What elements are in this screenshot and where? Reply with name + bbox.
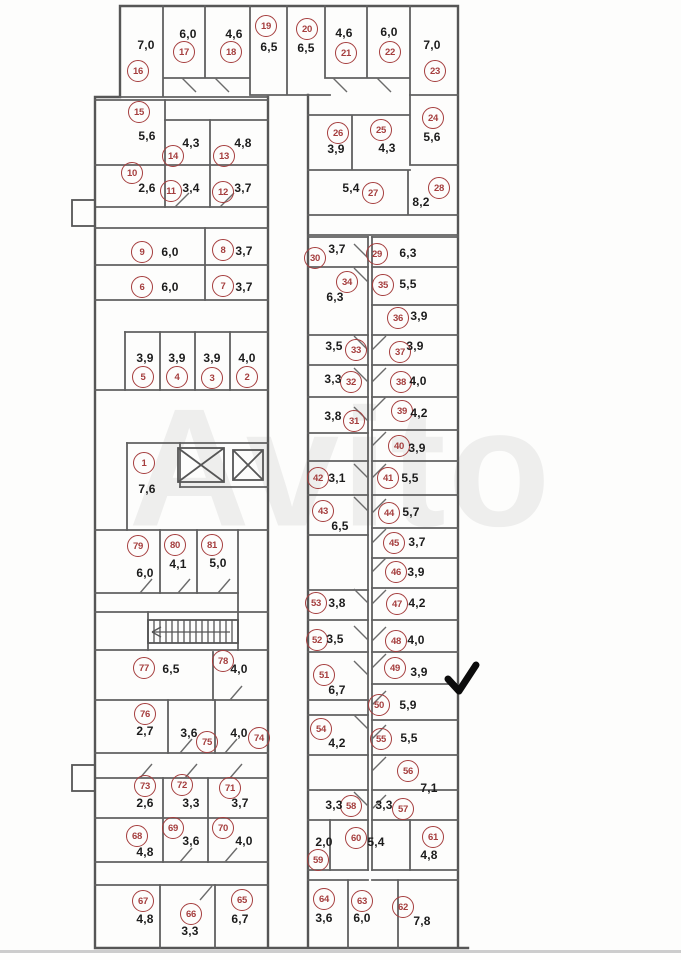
room-number: 16 bbox=[133, 66, 143, 77]
room-area-label: 3,9 bbox=[410, 309, 427, 323]
room-area-label: 3,6 bbox=[315, 911, 332, 925]
room-8-circle: 8 bbox=[212, 239, 234, 261]
room-number: 72 bbox=[177, 780, 187, 791]
bottom-divider bbox=[0, 950, 681, 953]
room-number: 21 bbox=[341, 48, 351, 59]
room-area-label: 3,3 bbox=[324, 372, 341, 386]
room-5-circle: 5 bbox=[132, 366, 154, 388]
room-47-circle: 47 bbox=[386, 593, 408, 615]
room-area-label: 4,2 bbox=[328, 736, 345, 750]
room-number: 71 bbox=[225, 783, 235, 794]
room-number: 79 bbox=[133, 541, 143, 552]
room-number: 68 bbox=[132, 831, 142, 842]
room-79-circle: 79 bbox=[127, 535, 149, 557]
room-number: 58 bbox=[346, 801, 356, 812]
room-number: 10 bbox=[127, 168, 137, 179]
room-36-circle: 36 bbox=[387, 307, 409, 329]
room-number: 13 bbox=[219, 151, 229, 162]
room-4-circle: 4 bbox=[166, 366, 188, 388]
room-24-circle: 24 bbox=[422, 107, 444, 129]
room-area-label: 5,5 bbox=[401, 471, 418, 485]
floorplan: Avito bbox=[0, 0, 681, 960]
room-area-label: 3,3 bbox=[181, 924, 198, 938]
room-number: 29 bbox=[372, 249, 382, 260]
room-area-label: 3,1 bbox=[328, 471, 345, 485]
room-46-circle: 46 bbox=[385, 561, 407, 583]
room-number: 62 bbox=[398, 902, 408, 913]
room-number: 32 bbox=[346, 377, 356, 388]
room-area-label: 7,6 bbox=[138, 482, 155, 496]
room-area-label: 6,5 bbox=[162, 662, 179, 676]
room-32-circle: 32 bbox=[340, 371, 362, 393]
room-area-label: 4,8 bbox=[420, 848, 437, 862]
room-16-circle: 16 bbox=[127, 60, 149, 82]
room-area-label: 4,0 bbox=[409, 374, 426, 388]
room-35-circle: 35 bbox=[372, 274, 394, 296]
room-area-label: 3,9 bbox=[407, 565, 424, 579]
room-number: 55 bbox=[376, 734, 386, 745]
room-area-label: 3,9 bbox=[406, 339, 423, 353]
room-number: 31 bbox=[349, 416, 359, 427]
room-number: 36 bbox=[393, 313, 403, 324]
room-number: 70 bbox=[218, 823, 228, 834]
room-number: 9 bbox=[140, 247, 145, 258]
room-area-label: 4,8 bbox=[234, 136, 251, 150]
room-number: 5 bbox=[141, 372, 146, 383]
room-27-circle: 27 bbox=[362, 182, 384, 204]
room-number: 3 bbox=[210, 373, 215, 384]
room-62-circle: 62 bbox=[392, 896, 414, 918]
room-area-label: 3,9 bbox=[408, 441, 425, 455]
room-area-label: 5,4 bbox=[342, 181, 359, 195]
room-number: 54 bbox=[316, 724, 326, 735]
room-area-label: 5,7 bbox=[402, 505, 419, 519]
room-14-circle: 14 bbox=[162, 145, 184, 167]
room-area-label: 6,0 bbox=[179, 27, 196, 41]
room-area-label: 7,8 bbox=[413, 914, 430, 928]
room-area-label: 6,0 bbox=[161, 245, 178, 259]
room-number: 69 bbox=[168, 823, 178, 834]
room-number: 50 bbox=[374, 700, 384, 711]
room-number: 65 bbox=[237, 895, 247, 906]
room-area-label: 3,7 bbox=[235, 244, 252, 258]
room-area-label: 3,3 bbox=[375, 798, 392, 812]
room-42-circle: 42 bbox=[307, 467, 329, 489]
room-area-label: 5,4 bbox=[367, 835, 384, 849]
room-area-label: 4,0 bbox=[230, 726, 247, 740]
room-area-label: 6,5 bbox=[331, 519, 348, 533]
room-number: 33 bbox=[351, 345, 361, 356]
room-number: 52 bbox=[312, 635, 322, 646]
room-22-circle: 22 bbox=[379, 41, 401, 63]
room-25-circle: 25 bbox=[370, 119, 392, 141]
room-area-label: 4,6 bbox=[225, 27, 242, 41]
room-9-circle: 9 bbox=[131, 241, 153, 263]
room-number: 42 bbox=[313, 473, 323, 484]
room-area-label: 5,6 bbox=[423, 130, 440, 144]
room-area-label: 3,7 bbox=[231, 796, 248, 810]
room-area-label: 6,0 bbox=[136, 566, 153, 580]
room-55-circle: 55 bbox=[370, 728, 392, 750]
room-number: 12 bbox=[218, 187, 228, 198]
room-number: 75 bbox=[202, 737, 212, 748]
room-number: 66 bbox=[186, 909, 196, 920]
room-number: 35 bbox=[378, 280, 388, 291]
room-number: 26 bbox=[333, 128, 343, 139]
room-number: 61 bbox=[428, 832, 438, 843]
room-number: 64 bbox=[319, 894, 329, 905]
room-number: 80 bbox=[170, 540, 180, 551]
room-23-circle: 23 bbox=[424, 60, 446, 82]
room-area-label: 6,3 bbox=[399, 246, 416, 260]
room-number: 74 bbox=[254, 733, 264, 744]
room-area-label: 3,7 bbox=[235, 280, 252, 294]
room-number: 53 bbox=[311, 598, 321, 609]
room-28-circle: 28 bbox=[428, 177, 450, 199]
room-number: 23 bbox=[430, 66, 440, 77]
room-area-label: 4,6 bbox=[335, 26, 352, 40]
room-76-circle: 76 bbox=[134, 703, 156, 725]
room-53-circle: 53 bbox=[305, 592, 327, 614]
room-number: 45 bbox=[389, 538, 399, 549]
room-number: 38 bbox=[396, 377, 406, 388]
room-12-circle: 12 bbox=[212, 181, 234, 203]
room-2-circle: 2 bbox=[236, 366, 258, 388]
room-area-label: 3,8 bbox=[324, 409, 341, 423]
room-number: 40 bbox=[394, 441, 404, 452]
room-19-circle: 19 bbox=[255, 15, 277, 37]
room-number: 20 bbox=[302, 24, 312, 35]
room-area-label: 5,0 bbox=[209, 556, 226, 570]
room-number: 49 bbox=[390, 663, 400, 674]
room-area-label: 4,3 bbox=[182, 136, 199, 150]
room-area-label: 6,0 bbox=[353, 911, 370, 925]
room-56-circle: 56 bbox=[397, 760, 419, 782]
room-80-circle: 80 bbox=[164, 534, 186, 556]
room-70-circle: 70 bbox=[212, 817, 234, 839]
room-number: 67 bbox=[138, 896, 148, 907]
room-area-label: 3,9 bbox=[203, 351, 220, 365]
room-48-circle: 48 bbox=[385, 630, 407, 652]
room-area-label: 8,2 bbox=[412, 195, 429, 209]
room-area-label: 3,5 bbox=[325, 339, 342, 353]
room-29-circle: 29 bbox=[366, 243, 388, 265]
room-number: 15 bbox=[134, 107, 144, 118]
room-7-circle: 7 bbox=[212, 275, 234, 297]
room-1-circle: 1 bbox=[133, 452, 155, 474]
room-area-label: 4,0 bbox=[407, 633, 424, 647]
room-33-circle: 33 bbox=[345, 339, 367, 361]
room-area-label: 7,0 bbox=[137, 38, 154, 52]
room-area-label: 6,7 bbox=[328, 683, 345, 697]
room-number: 77 bbox=[139, 663, 149, 674]
room-66-circle: 66 bbox=[180, 903, 202, 925]
room-area-label: 2,7 bbox=[136, 724, 153, 738]
room-49-circle: 49 bbox=[384, 657, 406, 679]
room-number: 44 bbox=[384, 508, 394, 519]
room-69-circle: 69 bbox=[162, 817, 184, 839]
room-67-circle: 67 bbox=[132, 890, 154, 912]
room-number: 63 bbox=[357, 896, 367, 907]
room-area-label: 5,9 bbox=[399, 698, 416, 712]
room-number: 81 bbox=[207, 540, 217, 551]
room-number: 1 bbox=[142, 458, 147, 469]
room-81-circle: 81 bbox=[201, 534, 223, 556]
room-number: 4 bbox=[175, 372, 180, 383]
room-number: 2 bbox=[245, 372, 250, 383]
room-area-label: 3,4 bbox=[182, 181, 199, 195]
room-44-circle: 44 bbox=[378, 502, 400, 524]
room-number: 27 bbox=[368, 188, 378, 199]
room-number: 59 bbox=[313, 855, 323, 866]
room-area-label: 4,8 bbox=[136, 912, 153, 926]
room-area-label: 4,2 bbox=[408, 596, 425, 610]
room-68-circle: 68 bbox=[126, 825, 148, 847]
room-41-circle: 41 bbox=[377, 467, 399, 489]
room-3-circle: 3 bbox=[201, 367, 223, 389]
room-area-label: 4,2 bbox=[410, 406, 427, 420]
room-30-circle: 30 bbox=[304, 247, 326, 269]
room-number: 28 bbox=[434, 183, 444, 194]
room-45-circle: 45 bbox=[383, 532, 405, 554]
room-number: 18 bbox=[226, 47, 236, 58]
room-area-label: 3,3 bbox=[182, 796, 199, 810]
room-area-label: 4,0 bbox=[238, 351, 255, 365]
room-number: 24 bbox=[428, 113, 438, 124]
room-area-label: 3,7 bbox=[234, 181, 251, 195]
room-18-circle: 18 bbox=[220, 41, 242, 63]
room-area-label: 2,0 bbox=[315, 835, 332, 849]
room-60-circle: 60 bbox=[345, 827, 367, 849]
room-area-label: 5,6 bbox=[138, 129, 155, 143]
room-73-circle: 73 bbox=[134, 775, 156, 797]
room-63-circle: 63 bbox=[351, 890, 373, 912]
room-number: 48 bbox=[391, 636, 401, 647]
room-area-label: 6,7 bbox=[231, 912, 248, 926]
room-area-label: 6,0 bbox=[380, 25, 397, 39]
room-number: 30 bbox=[310, 253, 320, 264]
room-21-circle: 21 bbox=[335, 42, 357, 64]
room-number: 78 bbox=[218, 656, 228, 667]
room-17-circle: 17 bbox=[173, 41, 195, 63]
room-74-circle: 74 bbox=[248, 727, 270, 749]
room-area-label: 3,8 bbox=[328, 596, 345, 610]
room-40-circle: 40 bbox=[388, 435, 410, 457]
room-26-circle: 26 bbox=[327, 122, 349, 144]
room-area-label: 4,3 bbox=[378, 141, 395, 155]
room-area-label: 3,9 bbox=[136, 351, 153, 365]
room-number: 47 bbox=[392, 599, 402, 610]
room-number: 41 bbox=[383, 473, 393, 484]
room-11-circle: 11 bbox=[160, 180, 182, 202]
room-markers: 17,624,033,943,953,966,073,783,796,0102,… bbox=[0, 0, 681, 960]
room-number: 22 bbox=[385, 47, 395, 58]
room-area-label: 2,6 bbox=[136, 796, 153, 810]
room-area-label: 2,6 bbox=[138, 181, 155, 195]
room-64-circle: 64 bbox=[313, 888, 335, 910]
room-area-label: 4,1 bbox=[169, 557, 186, 571]
room-15-circle: 15 bbox=[128, 101, 150, 123]
room-area-label: 4,0 bbox=[230, 662, 247, 676]
room-number: 43 bbox=[318, 506, 328, 517]
room-number: 14 bbox=[168, 151, 178, 162]
room-area-label: 3,7 bbox=[408, 535, 425, 549]
room-59-circle: 59 bbox=[307, 849, 329, 871]
room-65-circle: 65 bbox=[231, 889, 253, 911]
room-area-label: 3,3 bbox=[325, 798, 342, 812]
room-area-label: 7,0 bbox=[423, 38, 440, 52]
room-area-label: 5,5 bbox=[399, 277, 416, 291]
room-number: 8 bbox=[221, 245, 226, 256]
room-20-circle: 20 bbox=[296, 18, 318, 40]
room-number: 37 bbox=[395, 347, 405, 358]
room-area-label: 3,5 bbox=[326, 632, 343, 646]
room-area-label: 6,3 bbox=[326, 290, 343, 304]
room-number: 19 bbox=[261, 21, 271, 32]
room-area-label: 3,9 bbox=[168, 351, 185, 365]
room-area-label: 4,8 bbox=[136, 845, 153, 859]
room-31-circle: 31 bbox=[343, 410, 365, 432]
room-area-label: 3,6 bbox=[180, 726, 197, 740]
room-61-circle: 61 bbox=[422, 826, 444, 848]
room-area-label: 6,0 bbox=[161, 280, 178, 294]
room-number: 51 bbox=[319, 670, 329, 681]
room-number: 57 bbox=[398, 804, 408, 815]
room-area-label: 3,7 bbox=[328, 242, 345, 256]
room-number: 25 bbox=[376, 125, 386, 136]
room-area-label: 3,9 bbox=[327, 142, 344, 156]
room-number: 6 bbox=[140, 282, 145, 293]
room-58-circle: 58 bbox=[340, 795, 362, 817]
room-number: 60 bbox=[351, 833, 361, 844]
room-area-label: 4,0 bbox=[235, 834, 252, 848]
room-area-label: 6,5 bbox=[297, 41, 314, 55]
room-number: 11 bbox=[166, 186, 175, 197]
room-number: 17 bbox=[179, 47, 189, 58]
room-area-label: 3,9 bbox=[410, 665, 427, 679]
room-number: 7 bbox=[221, 281, 226, 292]
room-number: 76 bbox=[140, 709, 150, 720]
room-number: 34 bbox=[342, 277, 352, 288]
room-52-circle: 52 bbox=[306, 629, 328, 651]
room-number: 56 bbox=[403, 766, 413, 777]
room-area-label: 5,5 bbox=[400, 731, 417, 745]
room-6-circle: 6 bbox=[131, 276, 153, 298]
room-13-circle: 13 bbox=[213, 145, 235, 167]
room-area-label: 7,1 bbox=[420, 781, 437, 795]
room-77-circle: 77 bbox=[133, 657, 155, 679]
room-number: 73 bbox=[140, 781, 150, 792]
room-area-label: 6,5 bbox=[260, 40, 277, 54]
room-number: 46 bbox=[391, 567, 401, 578]
room-number: 39 bbox=[397, 406, 407, 417]
room-50-circle: 50 bbox=[368, 694, 390, 716]
room-75-circle: 75 bbox=[196, 731, 218, 753]
room-57-circle: 57 bbox=[392, 798, 414, 820]
room-area-label: 3,6 bbox=[182, 834, 199, 848]
room-72-circle: 72 bbox=[171, 774, 193, 796]
